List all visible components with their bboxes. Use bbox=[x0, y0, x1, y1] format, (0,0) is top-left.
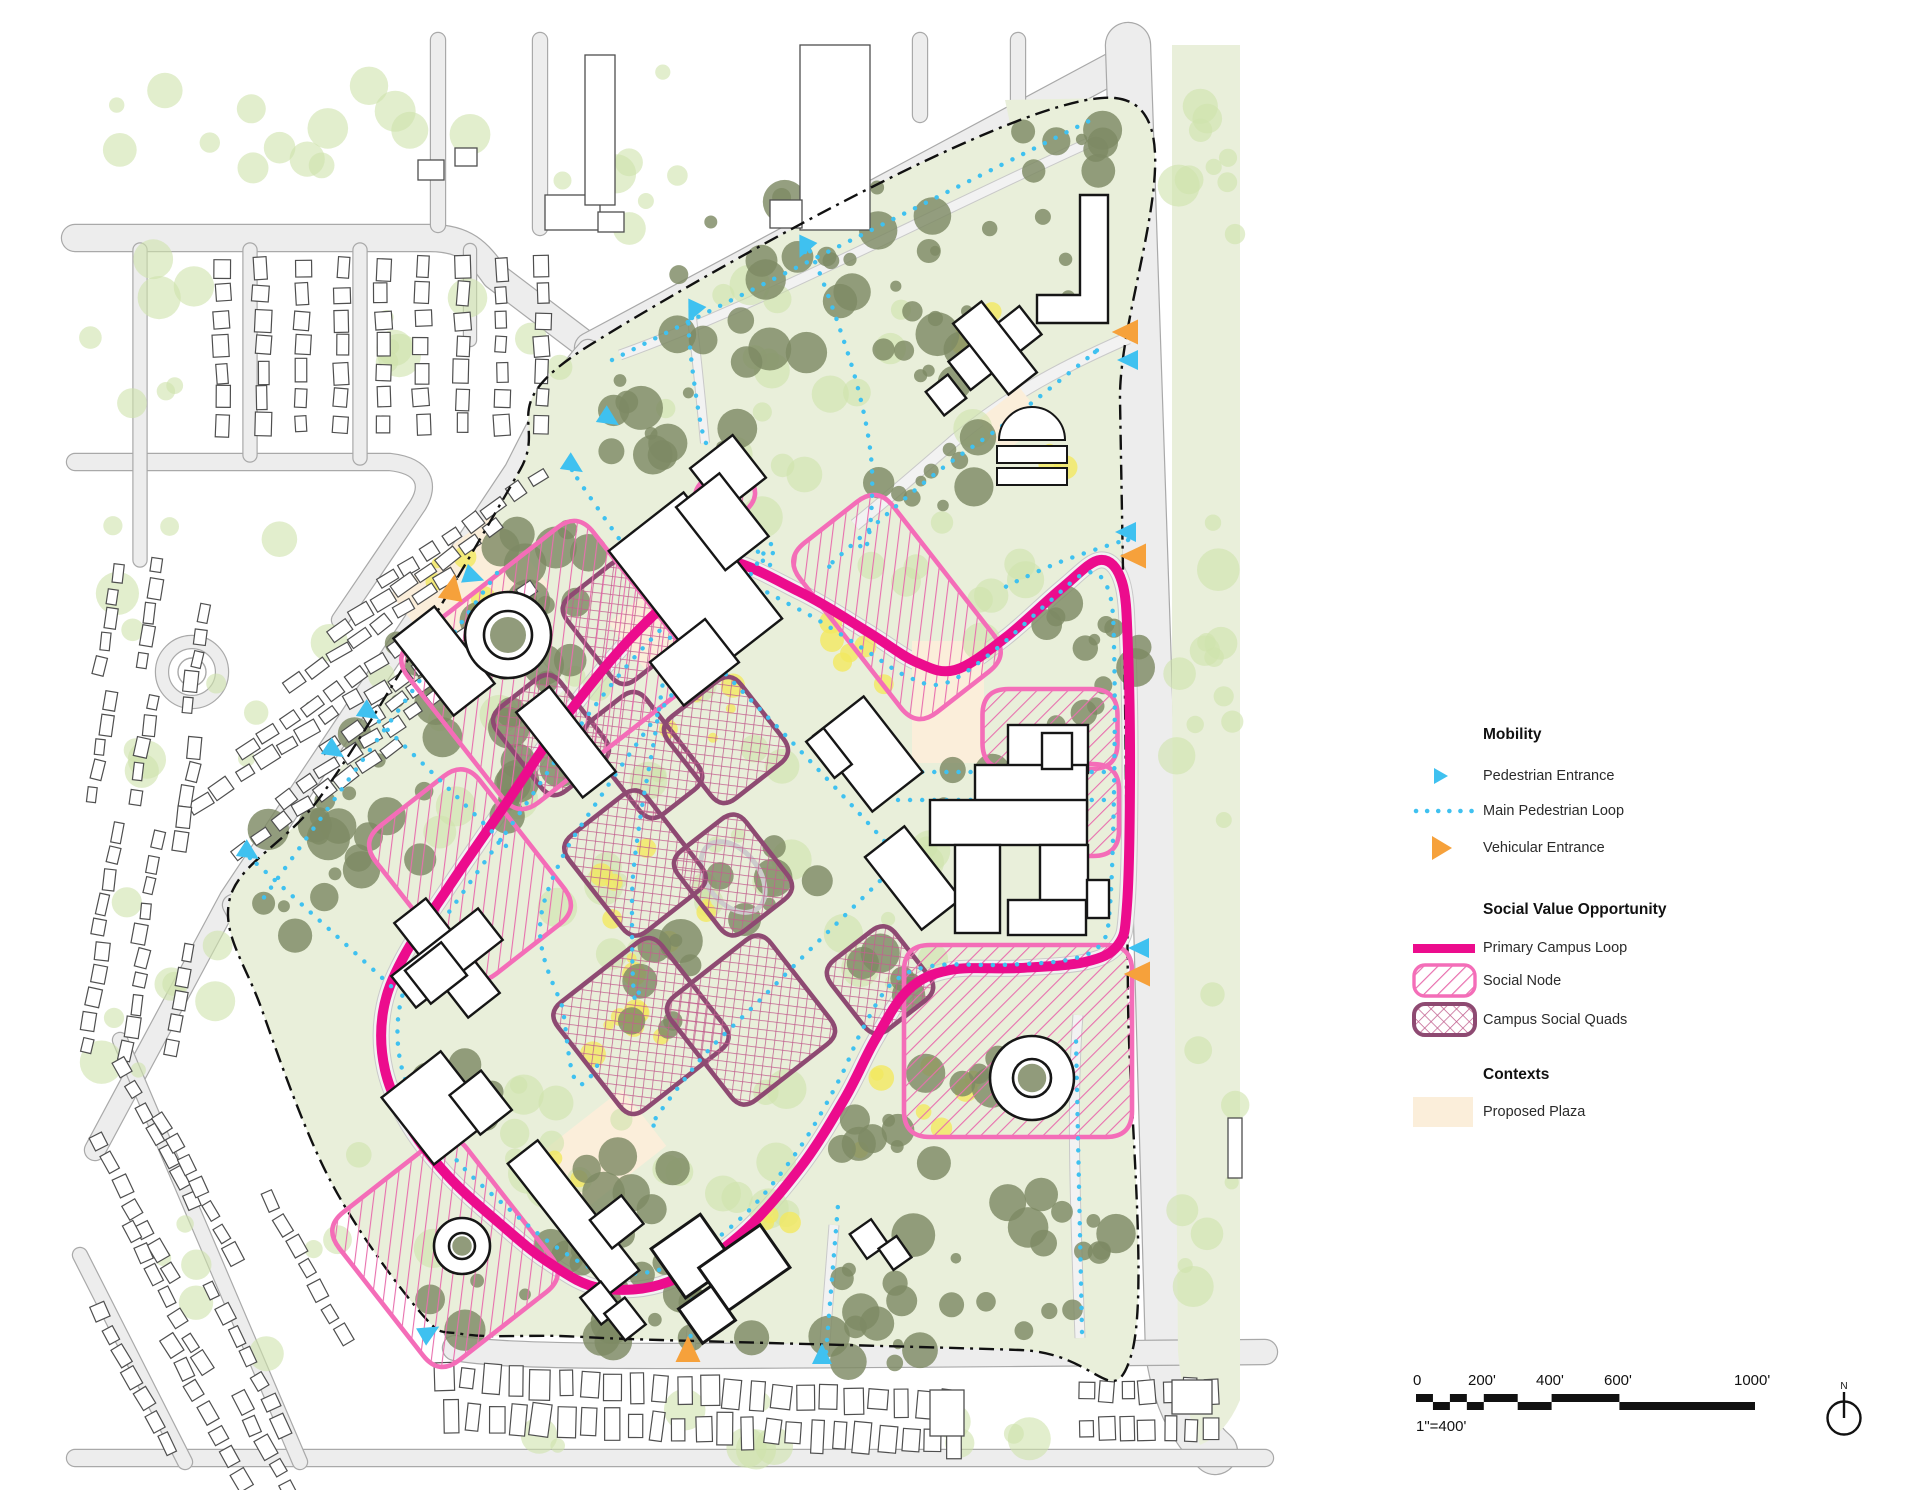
scale-note: 1"=400' bbox=[1416, 1418, 1466, 1435]
legend-item-campus-social-quads: Campus Social Quads bbox=[1412, 1002, 1842, 1038]
north-arrow: N bbox=[1818, 1376, 1870, 1446]
scale-tick-200: 200' bbox=[1468, 1372, 1496, 1389]
legend-section-social-value-title: Social Value Opportunity bbox=[1483, 901, 1843, 919]
campus-master-plan-map bbox=[0, 0, 1920, 1490]
scale-tick-600: 600' bbox=[1604, 1372, 1632, 1389]
legend-item-pedestrian-entrance: Pedestrian Entrance bbox=[1412, 758, 1842, 794]
north-label: N bbox=[1840, 1381, 1847, 1392]
primary-campus-loop-icon bbox=[1412, 940, 1476, 956]
pedestrian-entrance-icon bbox=[1412, 764, 1476, 788]
proposed-plaza-icon bbox=[1412, 1095, 1476, 1129]
legend-item-main-pedestrian-loop: Main Pedestrian Loop bbox=[1412, 793, 1842, 829]
main-pedestrian-loop-icon bbox=[1412, 799, 1476, 823]
scale-tick-400: 400' bbox=[1536, 1372, 1564, 1389]
social-node-icon bbox=[1412, 963, 1478, 999]
scale-tick-1000: 1000' bbox=[1734, 1372, 1770, 1389]
legend-item-vehicular-entrance: Vehicular Entrance bbox=[1412, 830, 1842, 866]
legend-section-contexts-title: Contexts bbox=[1483, 1066, 1843, 1084]
scale-tick-0: 0 bbox=[1413, 1372, 1421, 1389]
scale-bar-blocks bbox=[1416, 1392, 1761, 1416]
legend-section-mobility-title: Mobility bbox=[1483, 726, 1843, 744]
legend-item-social-node: Social Node bbox=[1412, 963, 1842, 999]
legend-item-proposed-plaza: Proposed Plaza bbox=[1412, 1094, 1842, 1130]
legend-item-primary-campus-loop: Primary Campus Loop bbox=[1412, 930, 1842, 966]
vehicular-entrance-icon bbox=[1412, 833, 1476, 863]
campus-social-quads-icon bbox=[1412, 1002, 1478, 1038]
